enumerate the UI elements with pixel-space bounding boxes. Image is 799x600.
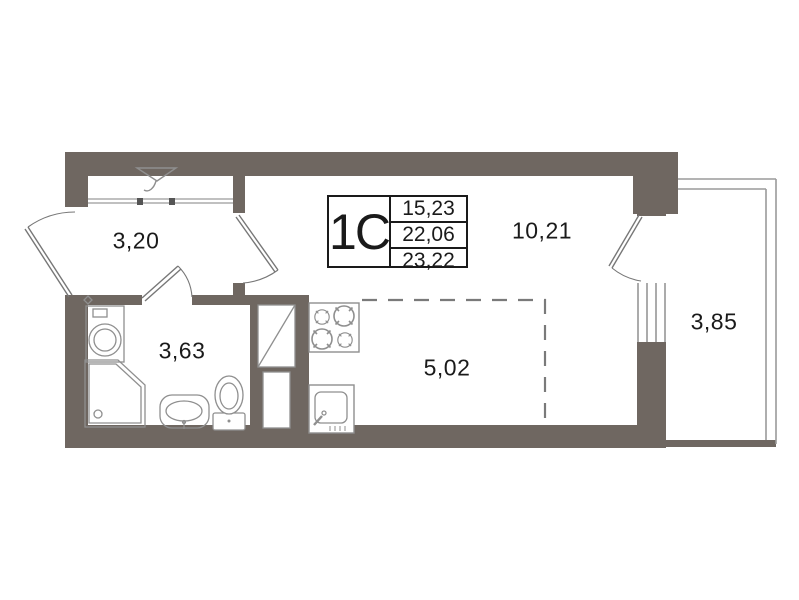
unit-type-label: 1С — [329, 197, 391, 266]
floor-plan: 3,20 3,63 5,02 10,21 3,85 1С 15,23 22,06… — [0, 0, 799, 600]
floor-plan-drawing — [0, 0, 799, 600]
balcony-door — [609, 215, 642, 281]
wall-left-upper — [65, 152, 88, 207]
plumbing-shaft-box — [263, 372, 290, 428]
shower-icon — [85, 360, 145, 427]
room-label-kitchen-zone: 5,02 — [424, 355, 471, 382]
wall-top — [65, 152, 678, 176]
balcony-bottom-wall — [666, 440, 776, 447]
wall-bottom — [65, 425, 666, 448]
living-room-door — [236, 215, 278, 283]
washing-machine-icon — [84, 296, 124, 362]
stove-icon — [309, 303, 359, 352]
unit-area-rows: 15,23 22,06 23,22 — [391, 197, 466, 266]
legend-living-area: 15,23 — [391, 197, 466, 223]
wardrobe-track-mark — [169, 198, 175, 205]
wardrobe-track-mark — [137, 198, 143, 205]
partition-hall-room-upper — [233, 176, 245, 213]
room-label-balcony: 3,85 — [691, 309, 738, 336]
legend-apartment-area: 22,06 — [391, 223, 466, 249]
room-label-hallway: 3,20 — [113, 228, 160, 255]
washbasin-icon — [160, 395, 209, 429]
wall-right-upper — [637, 176, 666, 216]
legend-total-area: 23,22 — [391, 249, 466, 273]
toilet-icon — [213, 376, 245, 430]
partition-hall-bath-left — [88, 295, 142, 305]
window-icon — [637, 283, 666, 342]
door-swing-icon — [243, 270, 278, 283]
door-swing-icon — [28, 212, 75, 227]
room-label-bathroom: 3,63 — [159, 338, 206, 365]
vent-shaft-icon — [258, 305, 295, 428]
door-swing-icon — [612, 268, 641, 281]
unit-info-box: 1С 15,23 22,06 23,22 — [327, 195, 468, 268]
entrance-door — [25, 212, 75, 297]
kitchen-sink-icon — [309, 385, 354, 433]
room-label-living-room: 10,21 — [512, 218, 572, 245]
bathroom-door — [142, 266, 192, 301]
